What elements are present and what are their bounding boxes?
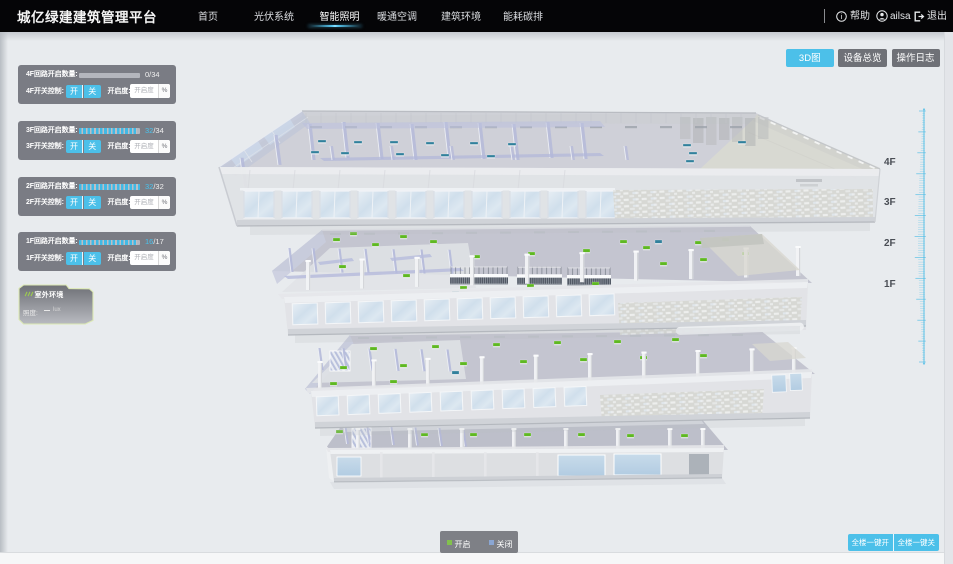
- svg-text:i: i: [841, 12, 843, 21]
